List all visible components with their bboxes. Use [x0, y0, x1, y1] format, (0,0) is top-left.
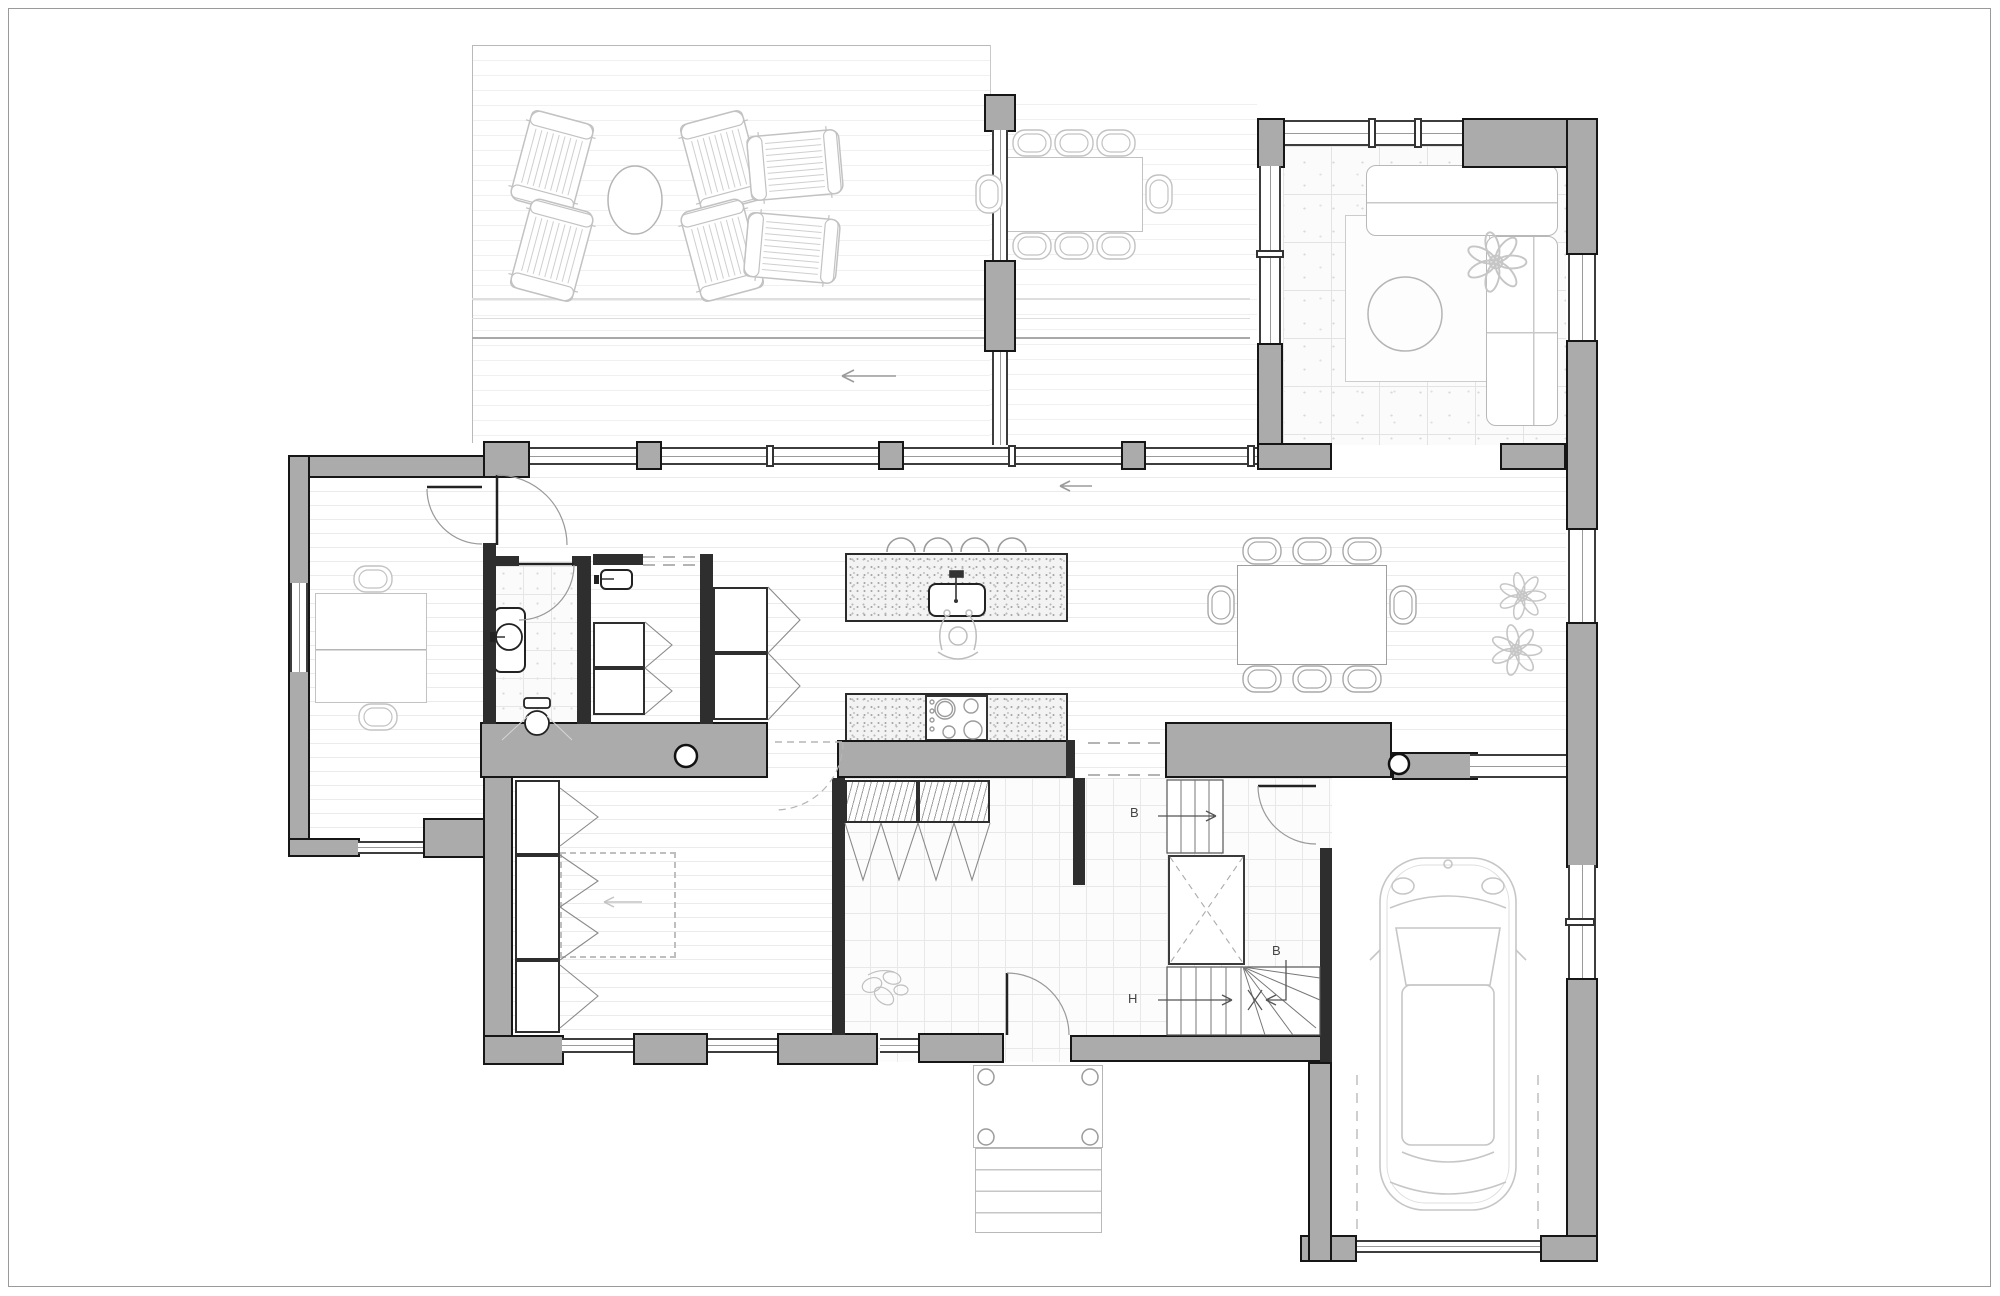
- column-icon: [1389, 754, 1409, 774]
- lounge-chair-icon: [743, 208, 841, 288]
- lounge-chair-icon: [746, 125, 844, 205]
- washbasin-icon: [490, 624, 522, 650]
- car-icon: [1370, 858, 1526, 1210]
- coffee-table-icon: [1368, 277, 1442, 351]
- plant-icon: [1466, 231, 1527, 293]
- stair-icon: [1158, 780, 1320, 1035]
- direction-arrow: [842, 370, 1092, 491]
- plant-icon: [1491, 624, 1542, 676]
- cased-opening: [643, 557, 1162, 775]
- floor-plan-canvas: B B H: [0, 0, 2000, 1296]
- column-icon: [675, 745, 697, 767]
- faucet-icon: [950, 571, 963, 603]
- direction-arrow: [604, 897, 642, 907]
- deck-round-table-icon: [608, 166, 662, 234]
- person-icon: [938, 610, 978, 659]
- door-swing-icon: [427, 475, 1316, 1035]
- garage-door-track: [1357, 1075, 1538, 1232]
- plant-icon: [1498, 572, 1545, 621]
- plan-symbols: [0, 0, 2000, 1296]
- utility-faucet: [594, 575, 614, 584]
- porch-post-icon: [978, 1069, 1098, 1145]
- clothes-pile-icon: [860, 970, 908, 1009]
- lounge-chair-icon: [505, 196, 598, 304]
- door-swing-triangles: [560, 587, 990, 1028]
- lounge-chair-icon: [505, 108, 598, 216]
- cooktop-burners: [930, 699, 982, 739]
